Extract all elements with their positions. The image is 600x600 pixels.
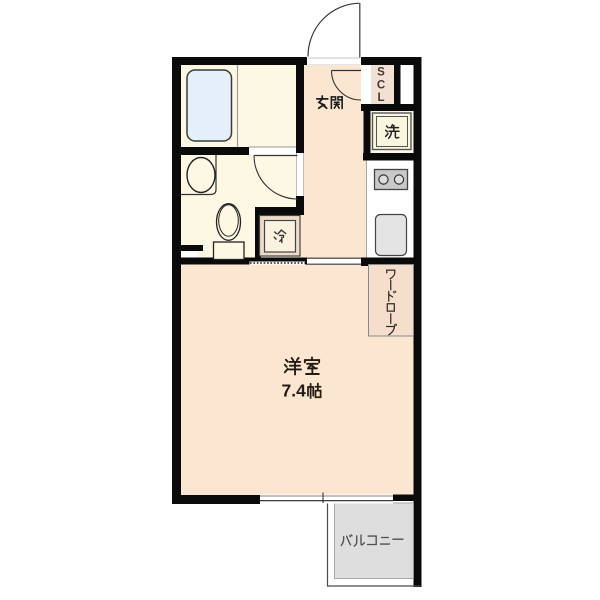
svg-text:7.4: 7.4 bbox=[282, 381, 307, 401]
svg-text:C: C bbox=[377, 80, 385, 92]
svg-text:S: S bbox=[377, 67, 385, 79]
svg-text:L: L bbox=[377, 92, 384, 104]
